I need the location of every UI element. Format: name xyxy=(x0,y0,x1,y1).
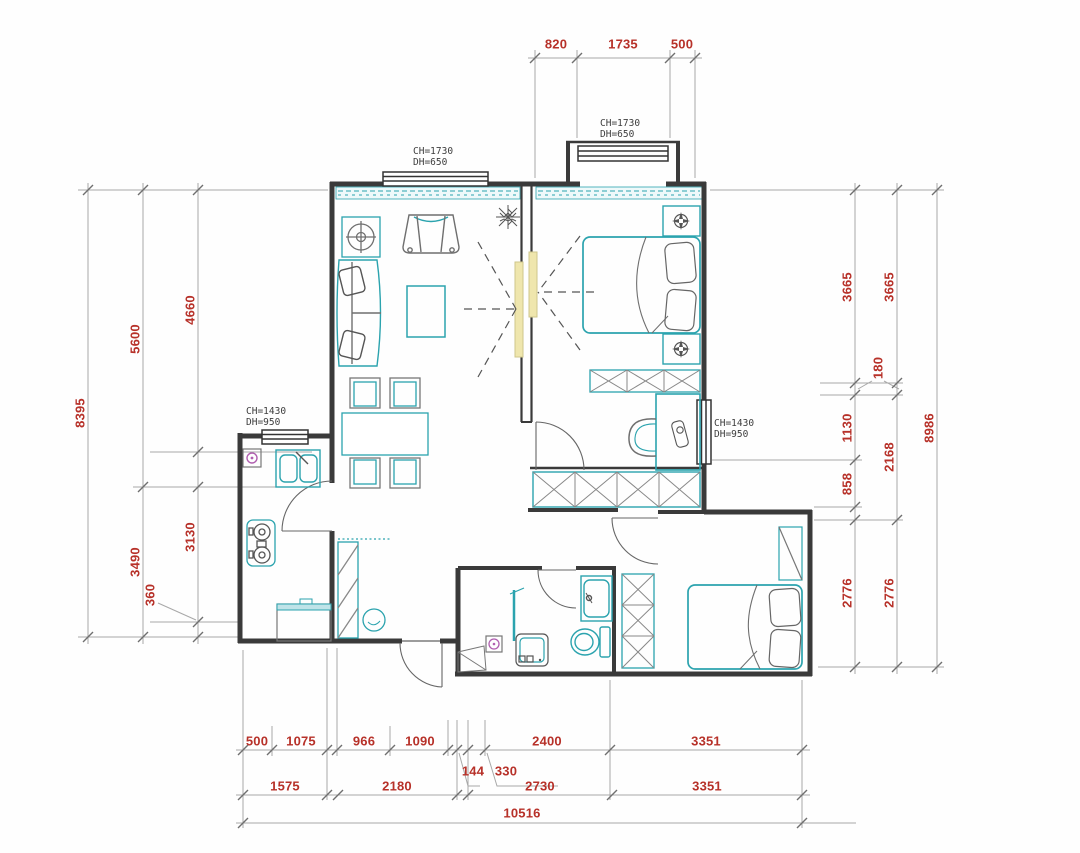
dim-bottom-144: 144 xyxy=(462,764,484,779)
floor-plan-drawing xyxy=(0,0,1080,853)
dim-right-1130: 1130 xyxy=(840,413,855,442)
armchair xyxy=(403,215,459,253)
dim-bottom-3351a: 3351 xyxy=(691,734,721,749)
annotation-ch: CH=1430 xyxy=(714,418,754,429)
nightstand-bottom xyxy=(663,334,700,364)
bathroom-door xyxy=(538,570,576,608)
dim-right-858: 858 xyxy=(840,473,855,495)
bed-single xyxy=(688,585,802,669)
stool xyxy=(363,609,385,631)
dim-bottom-1075: 1075 xyxy=(286,734,316,749)
kitchen-window xyxy=(262,430,308,444)
desk-lamp xyxy=(671,420,689,448)
toilet xyxy=(571,627,610,657)
dim-left-360: 360 xyxy=(143,584,158,606)
dim-bottom-2180: 2180 xyxy=(382,779,412,794)
dim-right-2776-a: 2776 xyxy=(840,578,855,608)
dim-bottom-500: 500 xyxy=(246,734,268,749)
walls xyxy=(238,142,812,676)
dim-right-3665-b: 3665 xyxy=(882,272,897,302)
dim-bottom-966: 966 xyxy=(353,734,375,749)
dim-left-3130: 3130 xyxy=(183,522,198,552)
fan-symbol xyxy=(342,217,380,257)
living-window xyxy=(383,172,488,186)
bedside-cabinet xyxy=(779,527,802,580)
shower-partition xyxy=(510,588,524,641)
dimension-ticks xyxy=(83,53,942,828)
bedroom2-door xyxy=(612,518,658,564)
annotation-ch: CH=1730 xyxy=(413,146,453,157)
dining-table-set xyxy=(342,378,428,488)
dim-bottom-1090: 1090 xyxy=(405,734,435,749)
dim-bottom-330: 330 xyxy=(495,764,517,779)
corner-step xyxy=(458,646,486,672)
dim-left-4660: 4660 xyxy=(183,295,198,325)
dim-bottom-2400: 2400 xyxy=(532,734,562,749)
annotation-dh: DH=950 xyxy=(714,429,754,440)
dim-left-8395: 8395 xyxy=(73,398,88,428)
vanity-sink xyxy=(581,576,612,621)
window-annotation-bay: CH=1730 DH=650 xyxy=(600,118,640,141)
dim-bottom-2730: 2730 xyxy=(525,779,555,794)
dim-top-820: 820 xyxy=(545,37,567,52)
nightstand-top xyxy=(663,206,700,236)
dim-bottom-1575: 1575 xyxy=(270,779,300,794)
window-annotation-bedroom: CH=1430 DH=950 xyxy=(714,418,754,441)
dim-right-8986: 8986 xyxy=(922,413,937,443)
bedroom-window xyxy=(697,400,711,464)
window-annotation-living: CH=1730 DH=650 xyxy=(413,146,453,169)
wardrobe-bedroom2 xyxy=(622,574,654,668)
desk-chair xyxy=(629,419,656,456)
plant-icon xyxy=(496,205,520,229)
dim-right-180: 180 xyxy=(871,357,886,379)
wardrobe-bedroom1 xyxy=(590,370,700,392)
floor-drain xyxy=(486,636,502,652)
annotation-dh: DH=650 xyxy=(600,129,640,140)
dim-right-2168: 2168 xyxy=(882,442,897,472)
coffee-table xyxy=(407,286,445,337)
gas-stove xyxy=(247,520,275,566)
bedroom1-door xyxy=(536,422,584,470)
floor-plan-canvas: 820 1735 500 8395 5600 3490 4660 3130 36… xyxy=(0,0,1080,853)
window-sills xyxy=(336,187,702,199)
entry-door xyxy=(400,643,442,687)
kitchen-sink xyxy=(276,450,320,487)
washing-machine xyxy=(516,634,548,666)
dim-right-2776-b: 2776 xyxy=(882,578,897,608)
annotation-ch: CH=1730 xyxy=(600,118,640,129)
dim-bottom-10516: 10516 xyxy=(503,806,540,821)
window-annotation-kitchen: CH=1430 DH=950 xyxy=(246,406,286,429)
bay-window xyxy=(578,146,668,161)
dim-top-500: 500 xyxy=(671,37,693,52)
sliding-door-panels xyxy=(515,252,537,357)
kitchen-counter xyxy=(277,599,331,641)
bed-double xyxy=(583,237,700,333)
dimension-lines xyxy=(78,50,944,828)
annotation-dh: DH=650 xyxy=(413,157,453,168)
dim-left-3490: 3490 xyxy=(128,547,143,577)
annotation-dh: DH=950 xyxy=(246,417,286,428)
dim-right-3665-a: 3665 xyxy=(840,272,855,302)
dim-left-5600: 5600 xyxy=(128,324,143,354)
dim-top-1735: 1735 xyxy=(608,37,638,52)
dim-bottom-3351b: 3351 xyxy=(692,779,722,794)
kitchen-door xyxy=(282,481,332,531)
annotation-ch: CH=1430 xyxy=(246,406,286,417)
sofa xyxy=(337,260,381,366)
closet-hall xyxy=(533,472,700,507)
